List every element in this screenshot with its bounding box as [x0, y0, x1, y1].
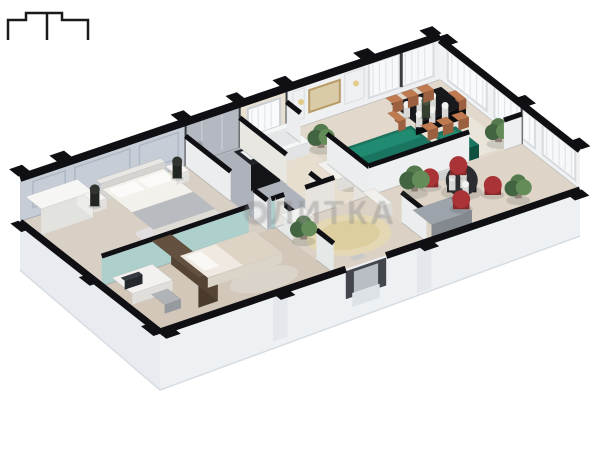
table-lamp [88, 184, 101, 209]
floorplan-3d-render-page: ЛИТКА [0, 0, 600, 450]
wall-sconce-icon [353, 80, 359, 86]
building-footprint-minimap [0, 0, 100, 40]
table-lamp [171, 156, 184, 181]
apartment-3d-floorplan [0, 0, 600, 450]
wall-sconce-icon [298, 99, 304, 105]
